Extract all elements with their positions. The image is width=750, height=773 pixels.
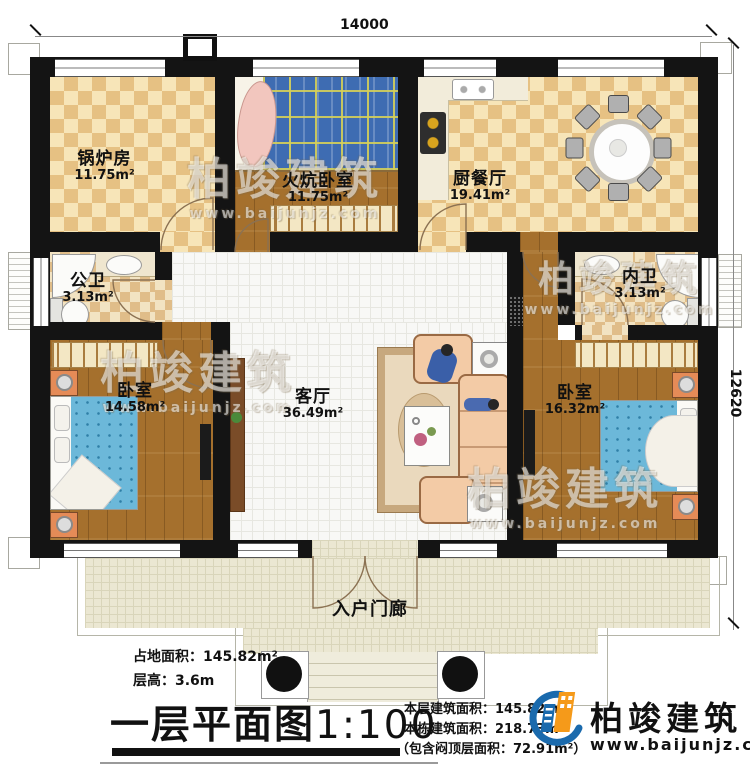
room-area: 3.13m² bbox=[48, 291, 128, 306]
top-dimension-label: 14000 bbox=[340, 17, 389, 33]
door-opening bbox=[155, 280, 172, 322]
kitchen-sink bbox=[452, 79, 494, 100]
room-label-boiler: 锅炉房 11.75m² bbox=[42, 150, 167, 184]
window bbox=[440, 543, 497, 558]
floor-height-text: 层高：3.6m bbox=[133, 670, 214, 690]
window bbox=[55, 59, 165, 77]
right-dimension-line bbox=[733, 45, 734, 630]
dining-table-center bbox=[609, 139, 627, 157]
stove bbox=[420, 112, 446, 154]
side-table bbox=[467, 486, 503, 522]
door-opening bbox=[520, 232, 558, 252]
room-name: 厨餐厅 bbox=[400, 170, 560, 189]
room-area: 14.58m² bbox=[75, 401, 195, 416]
entry-door-opening bbox=[312, 540, 418, 558]
exterior-steps bbox=[718, 254, 742, 328]
room-area: 16.32m² bbox=[520, 403, 630, 418]
room-name: 内卫 bbox=[598, 268, 682, 287]
title-underline-thin bbox=[100, 762, 438, 764]
nightstand bbox=[672, 372, 700, 398]
lamp bbox=[475, 494, 493, 512]
dining-chair bbox=[608, 183, 629, 201]
pillow bbox=[54, 405, 70, 431]
room-area: 19.41m² bbox=[400, 189, 560, 204]
wall-segment bbox=[270, 232, 398, 252]
dining-chair bbox=[566, 138, 584, 159]
room-label-porch: 入户门廊 bbox=[310, 600, 430, 620]
room-name: 卧室 bbox=[520, 384, 630, 403]
room-label-living: 客厅 36.49m² bbox=[258, 388, 368, 422]
door-opening bbox=[235, 232, 270, 252]
window bbox=[238, 543, 298, 558]
window bbox=[64, 543, 180, 558]
room-name: 锅炉房 bbox=[42, 150, 167, 169]
bed-sheet bbox=[645, 415, 698, 487]
room-name: 入户门廊 bbox=[310, 600, 430, 620]
wardrobe bbox=[270, 205, 398, 232]
tv-cabinet bbox=[230, 358, 245, 512]
window bbox=[424, 59, 496, 77]
lamp bbox=[480, 350, 498, 368]
wall-segment bbox=[50, 232, 160, 252]
company-logo-icon bbox=[522, 686, 584, 754]
coffee-table bbox=[404, 406, 450, 466]
door-opening bbox=[582, 325, 628, 340]
wall-segment bbox=[558, 252, 575, 325]
dining-chair bbox=[654, 138, 672, 159]
floorplan-page: { "dimensions": { "width": "14000", "hei… bbox=[0, 0, 750, 773]
room-area: 11.75m² bbox=[248, 191, 388, 206]
pillow bbox=[54, 437, 70, 463]
wall-segment bbox=[558, 232, 698, 252]
room-label-kitchen: 厨餐厅 19.41m² bbox=[400, 170, 560, 204]
wall-segment bbox=[211, 322, 230, 340]
window bbox=[701, 258, 717, 326]
flowers bbox=[427, 427, 436, 436]
door-opening bbox=[418, 232, 466, 252]
porch-column-core bbox=[442, 656, 478, 692]
wall-segment bbox=[466, 232, 520, 252]
window bbox=[557, 543, 667, 558]
door-opening bbox=[160, 232, 215, 252]
room-label-bedroom-left: 卧室 14.58m² bbox=[75, 382, 195, 416]
wardrobe bbox=[52, 342, 158, 368]
dining-chair bbox=[608, 95, 629, 113]
wardrobe bbox=[575, 342, 698, 368]
window bbox=[33, 258, 49, 326]
dim-tick bbox=[29, 24, 41, 36]
room-label-private-bath: 内卫 3.13m² bbox=[598, 268, 682, 302]
room-name: 卧室 bbox=[75, 382, 195, 401]
kang-bed-plaid bbox=[263, 77, 398, 170]
sofa bbox=[458, 374, 510, 490]
top-dimension-line bbox=[35, 36, 712, 37]
wall-segment bbox=[575, 325, 582, 340]
wall-segment bbox=[398, 77, 418, 252]
dim-tick bbox=[705, 24, 717, 36]
flowers bbox=[414, 433, 427, 446]
room-label-public-bath: 公卫 3.13m² bbox=[48, 272, 128, 306]
tv bbox=[524, 410, 535, 476]
room-label-kang-bedroom: 火炕卧室 11.75m² bbox=[248, 172, 388, 206]
nightstand bbox=[50, 512, 78, 538]
land-area-text: 占地面积：145.82m² bbox=[133, 646, 278, 666]
hallway-floor bbox=[523, 252, 558, 340]
room-area: 3.13m² bbox=[598, 287, 682, 302]
built-in-cabinet bbox=[509, 296, 523, 326]
door-opening bbox=[162, 322, 211, 340]
wall-segment bbox=[50, 322, 162, 340]
wall-segment bbox=[213, 340, 230, 540]
chimney bbox=[183, 34, 217, 61]
company-logo bbox=[522, 686, 584, 754]
right-dimension-label: 12620 bbox=[727, 358, 743, 428]
room-area: 36.49m² bbox=[258, 407, 368, 422]
title-underline-thick bbox=[112, 748, 400, 756]
person-head bbox=[441, 344, 453, 356]
plant bbox=[231, 412, 242, 423]
wall-segment bbox=[628, 325, 698, 340]
window bbox=[558, 59, 664, 77]
dish bbox=[412, 417, 420, 425]
wall-segment bbox=[155, 252, 172, 280]
person-head bbox=[488, 399, 499, 410]
room-name: 公卫 bbox=[48, 272, 128, 291]
nightstand bbox=[672, 494, 700, 520]
room-area: 11.75m² bbox=[42, 169, 167, 184]
company-name: 柏竣建筑 bbox=[590, 692, 742, 740]
room-name: 火炕卧室 bbox=[248, 172, 388, 191]
tv bbox=[200, 424, 211, 480]
company-website: www.baijunjz.com bbox=[590, 735, 750, 754]
plan-title-text: 一层平面图 bbox=[110, 703, 315, 748]
wall-segment bbox=[215, 77, 235, 252]
plan-title: 一层平面图1:100 bbox=[110, 694, 437, 750]
room-label-bedroom-right: 卧室 16.32m² bbox=[520, 384, 630, 418]
side-table bbox=[472, 342, 508, 378]
living-room-floor bbox=[172, 252, 507, 322]
room-name: 客厅 bbox=[258, 388, 368, 407]
window bbox=[253, 59, 359, 77]
kang-bed bbox=[235, 77, 398, 172]
nightstand bbox=[50, 370, 78, 396]
